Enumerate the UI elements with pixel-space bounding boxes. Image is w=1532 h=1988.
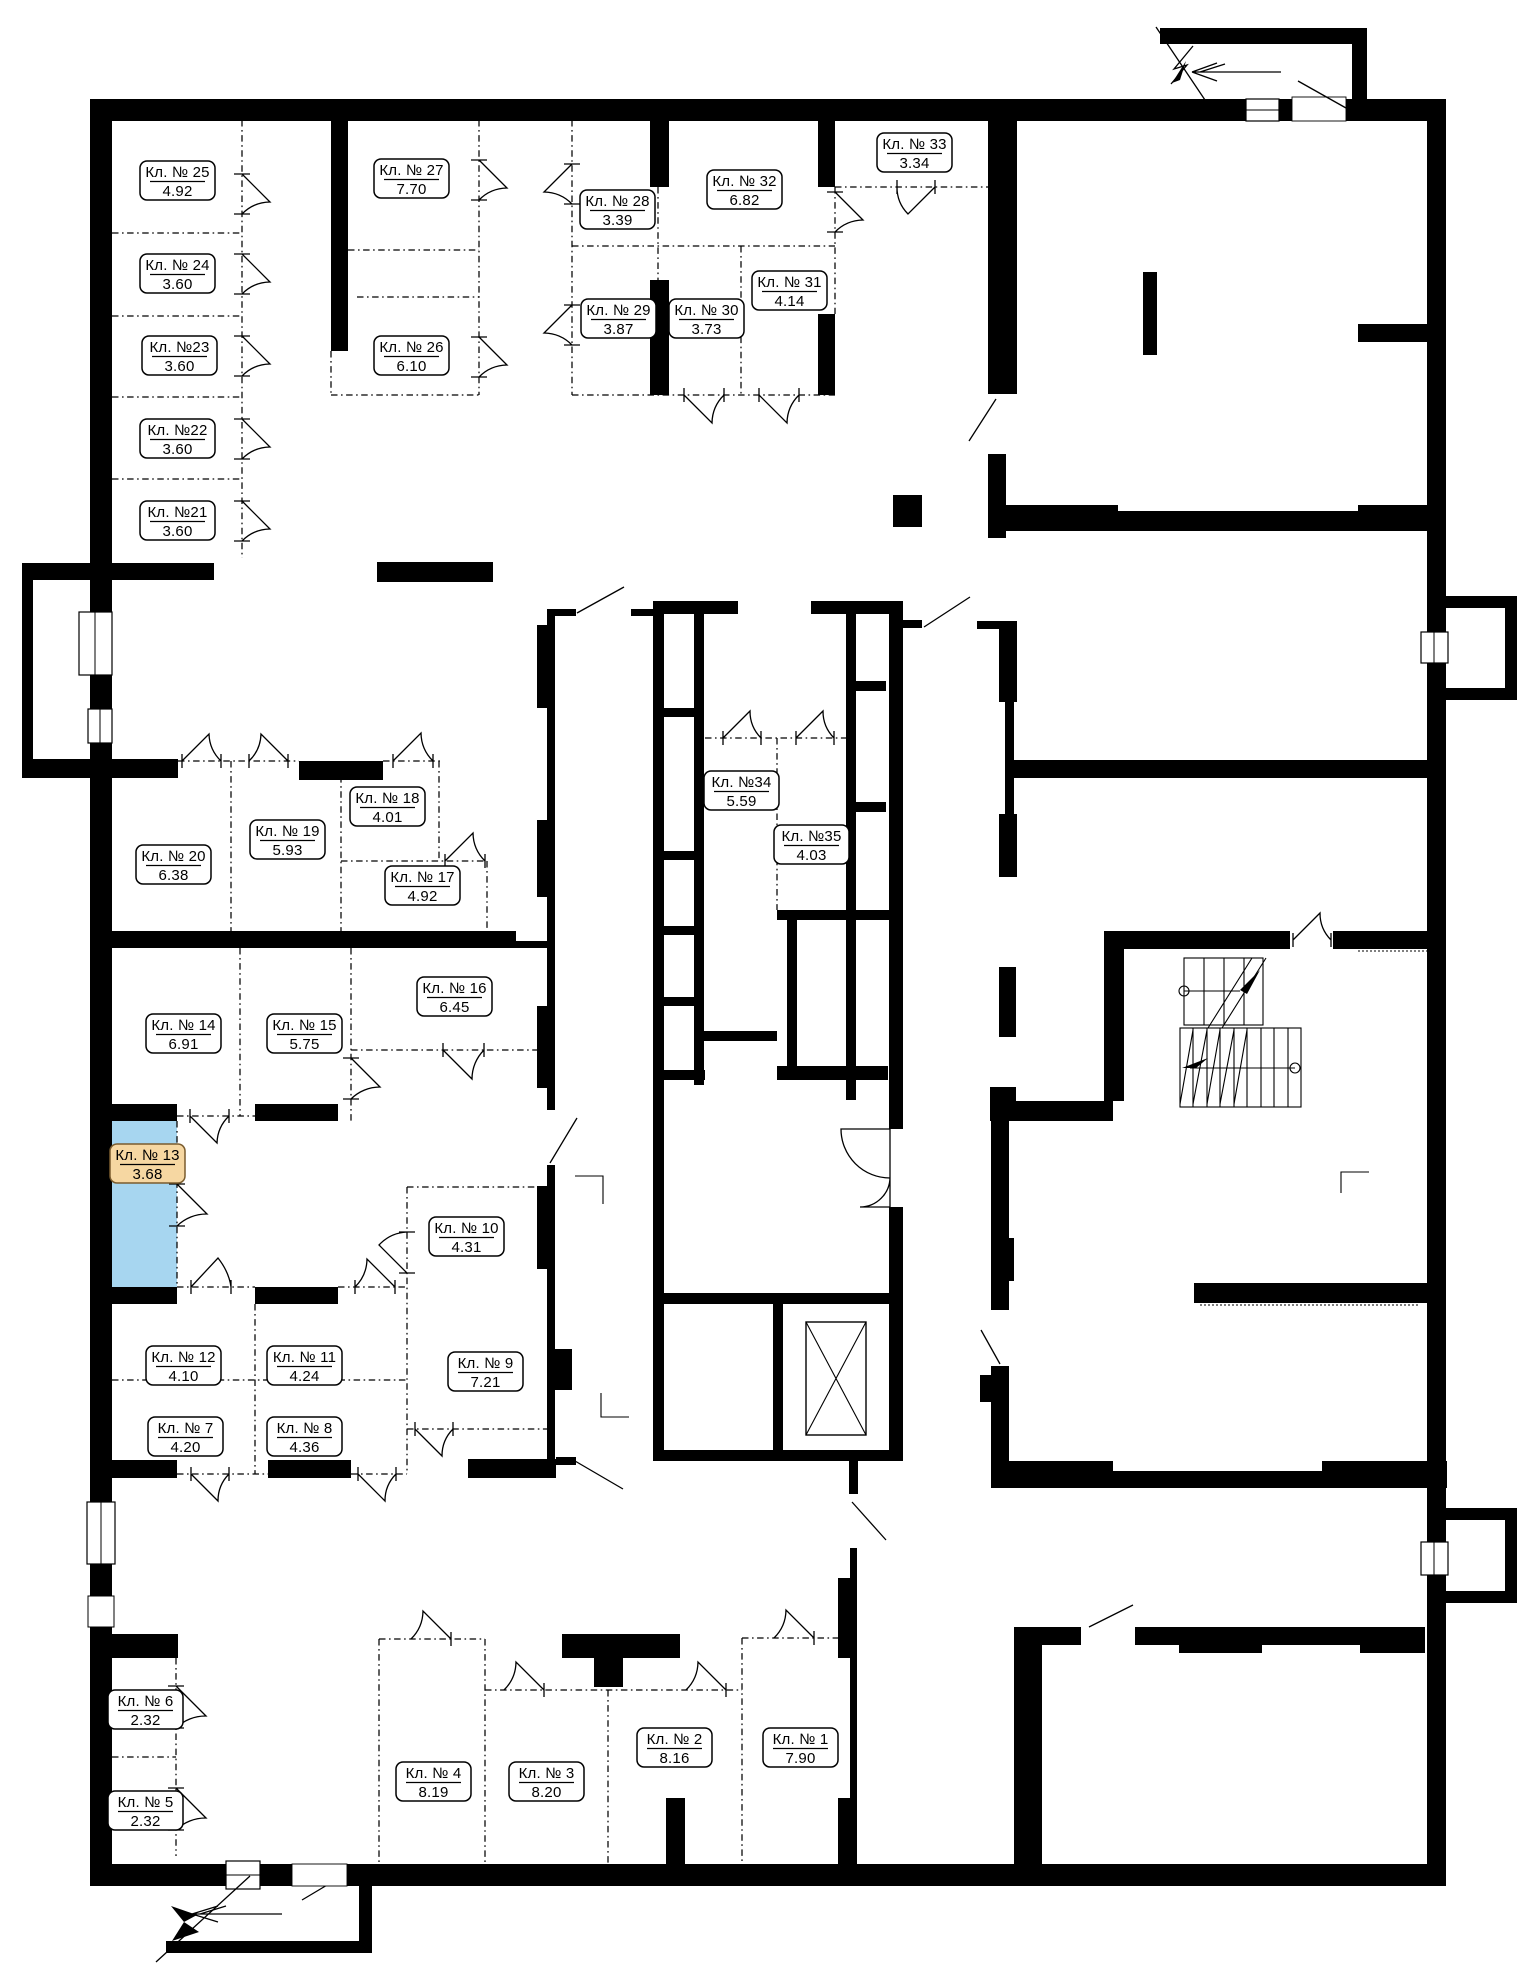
svg-text:3.68: 3.68	[133, 1166, 163, 1183]
svg-text:7.90: 7.90	[786, 1750, 816, 1767]
svg-text:Кл. № 30: Кл. № 30	[674, 302, 738, 319]
svg-text:2.32: 2.32	[131, 1813, 161, 1830]
svg-text:2.32: 2.32	[131, 1712, 161, 1729]
svg-text:Кл. № 29: Кл. № 29	[586, 302, 650, 319]
svg-text:Кл. № 20: Кл. № 20	[141, 848, 205, 865]
svg-text:5.59: 5.59	[727, 793, 757, 810]
svg-text:7.21: 7.21	[471, 1374, 501, 1391]
svg-text:3.73: 3.73	[692, 321, 722, 338]
svg-text:3.60: 3.60	[163, 276, 193, 293]
svg-text:Кл. № 2: Кл. № 2	[647, 1731, 703, 1748]
svg-text:Кл. № 13: Кл. № 13	[115, 1147, 179, 1164]
svg-text:Кл. № 9: Кл. № 9	[458, 1355, 514, 1372]
svg-text:Кл. № 25: Кл. № 25	[145, 164, 209, 181]
svg-text:4.01: 4.01	[373, 809, 403, 826]
svg-text:3.39: 3.39	[603, 212, 633, 229]
svg-text:Кл. № 18: Кл. № 18	[355, 790, 419, 807]
svg-text:4.10: 4.10	[169, 1368, 199, 1385]
svg-text:Кл. № 8: Кл. № 8	[277, 1420, 333, 1437]
svg-text:4.24: 4.24	[290, 1368, 320, 1385]
svg-text:4.31: 4.31	[452, 1239, 482, 1256]
svg-text:3.60: 3.60	[163, 441, 193, 458]
svg-text:Кл. № 27: Кл. № 27	[379, 162, 443, 179]
svg-text:6.91: 6.91	[169, 1036, 199, 1053]
svg-text:Кл. № 32: Кл. № 32	[712, 173, 776, 190]
svg-text:Кл. № 11: Кл. № 11	[273, 1349, 336, 1366]
svg-text:6.82: 6.82	[730, 192, 760, 209]
svg-text:Кл. № 5: Кл. № 5	[118, 1794, 174, 1811]
svg-text:6.10: 6.10	[397, 358, 427, 375]
svg-text:7.70: 7.70	[397, 181, 427, 198]
svg-text:8.16: 8.16	[660, 1750, 690, 1767]
svg-text:Кл. №35: Кл. №35	[781, 828, 841, 845]
svg-text:Кл. № 16: Кл. № 16	[422, 980, 486, 997]
svg-text:Кл. №21: Кл. №21	[147, 504, 207, 521]
svg-text:4.92: 4.92	[163, 183, 193, 200]
svg-text:Кл. № 3: Кл. № 3	[519, 1765, 575, 1782]
svg-text:Кл. № 28: Кл. № 28	[585, 193, 649, 210]
svg-text:Кл. № 24: Кл. № 24	[145, 257, 209, 274]
svg-text:Кл. № 17: Кл. № 17	[390, 869, 454, 886]
svg-text:8.20: 8.20	[532, 1784, 562, 1801]
svg-text:6.38: 6.38	[159, 867, 189, 884]
svg-text:5.75: 5.75	[290, 1036, 320, 1053]
svg-text:5.93: 5.93	[273, 842, 303, 859]
svg-text:Кл. № 19: Кл. № 19	[255, 823, 319, 840]
svg-text:Кл. № 1: Кл. № 1	[773, 1731, 829, 1748]
svg-text:Кл. № 14: Кл. № 14	[151, 1017, 215, 1034]
svg-text:Кл. № 7: Кл. № 7	[158, 1420, 214, 1437]
svg-text:Кл. № 33: Кл. № 33	[882, 136, 946, 153]
svg-text:Кл. № 6: Кл. № 6	[118, 1693, 174, 1710]
svg-text:3.60: 3.60	[165, 358, 195, 375]
svg-text:Кл. №34: Кл. №34	[711, 774, 771, 791]
svg-text:Кл. № 26: Кл. № 26	[379, 339, 443, 356]
svg-text:6.45: 6.45	[440, 999, 470, 1016]
svg-text:Кл. № 15: Кл. № 15	[272, 1017, 336, 1034]
svg-text:Кл. №22: Кл. №22	[147, 422, 207, 439]
svg-text:4.20: 4.20	[171, 1439, 201, 1456]
svg-text:Кл. № 4: Кл. № 4	[406, 1765, 462, 1782]
svg-text:8.19: 8.19	[419, 1784, 449, 1801]
svg-text:4.14: 4.14	[775, 293, 805, 310]
svg-text:4.92: 4.92	[408, 888, 438, 905]
svg-text:3.34: 3.34	[900, 155, 930, 172]
svg-text:3.87: 3.87	[604, 321, 634, 338]
svg-text:Кл. № 12: Кл. № 12	[151, 1349, 215, 1366]
svg-text:Кл. № 10: Кл. № 10	[434, 1220, 498, 1237]
svg-text:Кл. № 31: Кл. № 31	[757, 274, 821, 291]
svg-text:Кл. №23: Кл. №23	[149, 339, 209, 356]
svg-text:4.36: 4.36	[290, 1439, 320, 1456]
svg-text:4.03: 4.03	[797, 847, 827, 864]
svg-text:3.60: 3.60	[163, 523, 193, 540]
